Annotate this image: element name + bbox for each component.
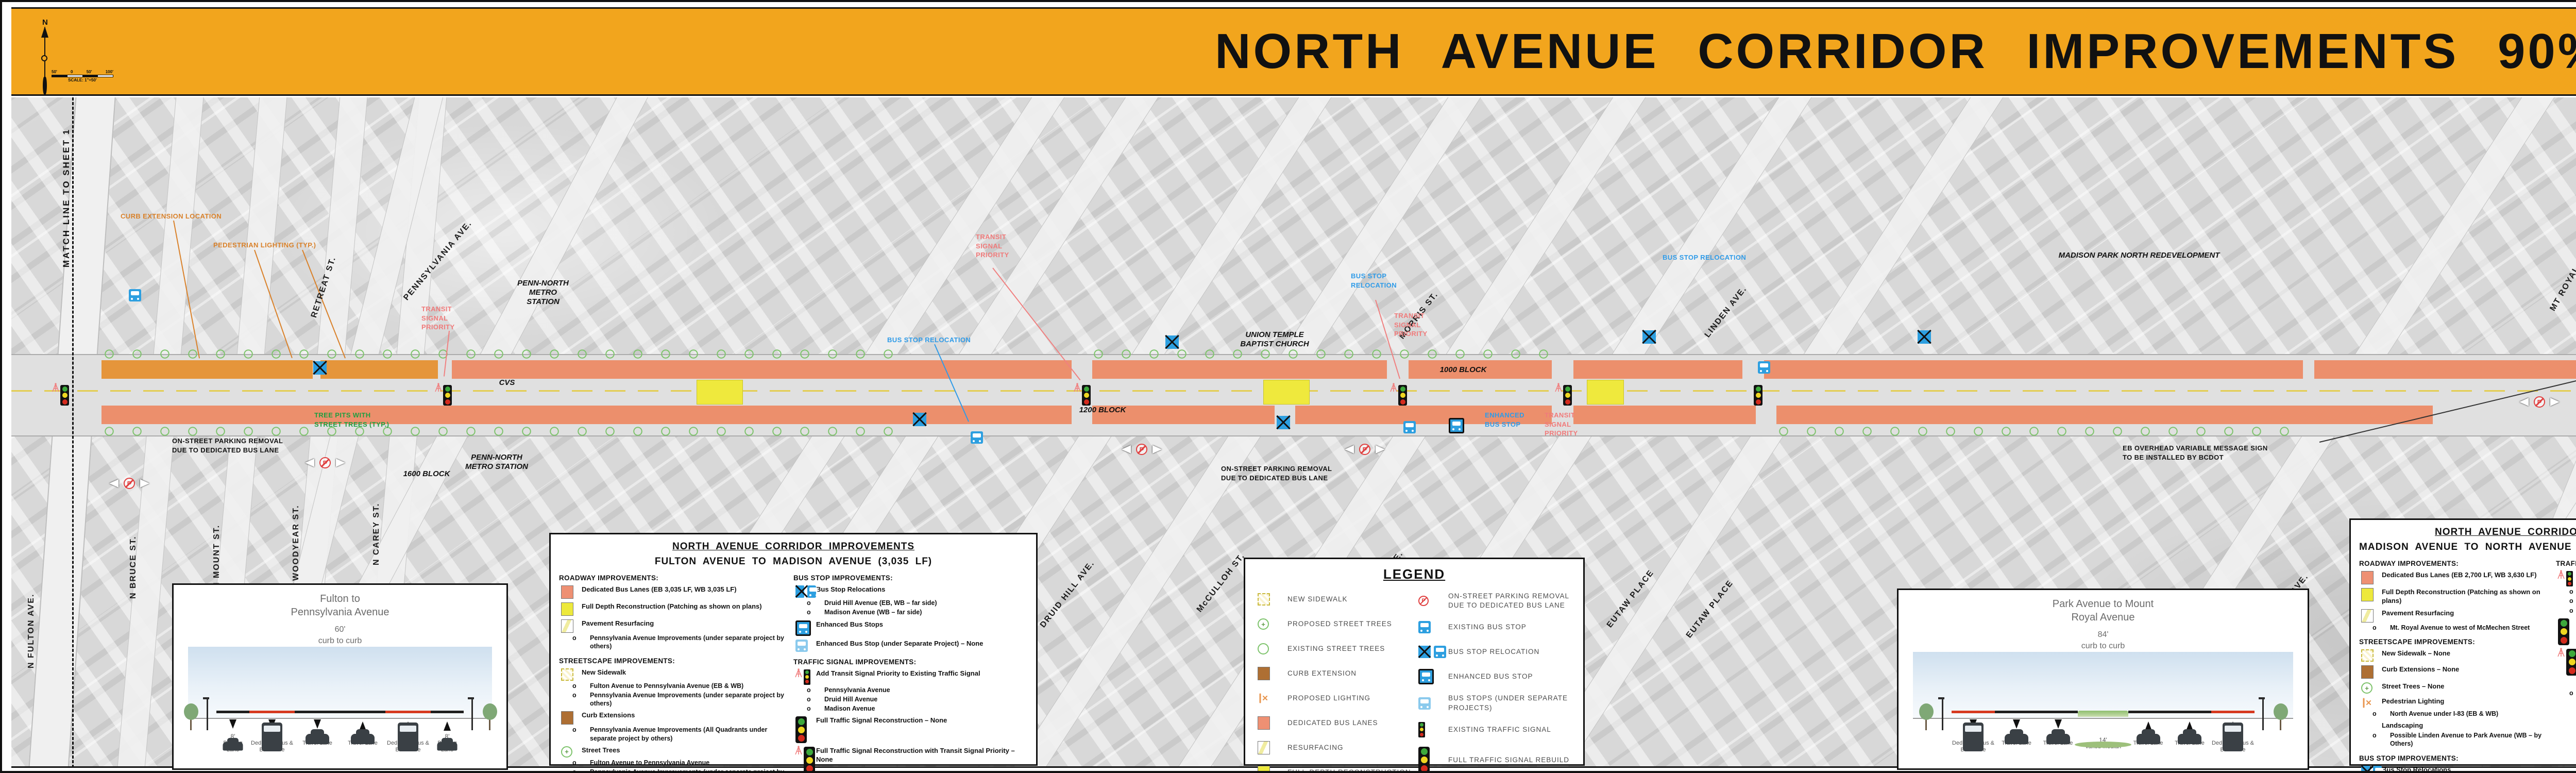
- legend-entry: Curb Extensions – None: [2361, 665, 2552, 679]
- dedicated-bus-lane-band: [2314, 360, 2576, 379]
- sig-big-tsp-icon: [795, 747, 816, 773]
- place-label: PENN-NORTHMETRO STATION: [465, 453, 528, 472]
- entry-label: Full Traffic Signal Reconstruction with …: [816, 747, 1024, 773]
- legend-entry: Full Depth Reconstruction (Patching as s…: [561, 602, 789, 616]
- improvement-group: TRAFFIC SIGNAL IMPROVEMENTS:Add Transit …: [2556, 560, 2576, 697]
- group-heading: BUS STOP IMPROVEMENTS:: [2359, 754, 2552, 762]
- group-heading: STREETSCAPE IMPROVEMENTS:: [559, 657, 789, 665]
- lane-surface: [295, 711, 340, 713]
- entry-label: Curb Extensions – None: [2382, 665, 2459, 679]
- bus-stop-removed-icon: [1277, 416, 1290, 429]
- legend-item: FULL-DEPTH RECONSTRUCTION: [1258, 765, 1414, 773]
- legend-item-label: ON-STREET PARKING REMOVAL DUE TO DEDICAT…: [1448, 592, 1575, 610]
- sub-bullet: o: [2569, 689, 2576, 697]
- legend-entry: Full Traffic Signal Reconstruction with …: [795, 747, 1024, 773]
- planted-median: [2075, 742, 2131, 748]
- sw-fd-icon: [561, 602, 582, 616]
- transit-signal-priority-icon: [1389, 383, 1398, 395]
- legend-item-label: CURB EXTENSION: [1287, 669, 1357, 678]
- bus-stop-removed-icon: [1918, 330, 1931, 344]
- lane-bus: 12'Dedicated Bus & Bike Lane: [1952, 711, 1995, 754]
- car-silhouette: [2137, 734, 2160, 744]
- legend-item-label: EXISTING TRAFFIC SIGNAL: [1448, 725, 1551, 734]
- legend-entry: Full Traffic Signal Reconstruction – Non…: [795, 716, 1024, 743]
- sub-label: Madison Avenue (WB – far side): [824, 608, 922, 616]
- entry-label: New Sidewalk – None: [2382, 649, 2450, 662]
- spacer: [2558, 679, 2576, 688]
- sw-rs-icon: [1258, 741, 1287, 754]
- lane-travel: 12'Travel Lane: [2168, 711, 2211, 747]
- lane-surface: [1952, 711, 1995, 713]
- street-trees-row: [104, 426, 908, 436]
- panel-title-line2: MADISON AVENUE TO NORTH AVENUE LIGHT RAI…: [2359, 540, 2576, 555]
- map-callout: BUS STOP RELOCATION: [887, 335, 971, 345]
- street-name-label: N FULTON AVE.: [27, 594, 36, 668]
- full-depth-reconstruction-patch: [697, 380, 743, 405]
- entry-label: Street Trees – None: [2382, 682, 2444, 694]
- sub-bullet: o: [572, 634, 590, 651]
- transit-signal-priority-icon: [1073, 383, 1081, 395]
- street-name-label: N CAREY ST.: [372, 503, 381, 565]
- entry-sub-item: oPennsylvania Avenue Improvements (under…: [572, 634, 789, 651]
- legend-item: ENHANCED BUS STOP: [1418, 669, 1575, 684]
- legend-entry: Bus Stop Relocations: [2361, 766, 2552, 773]
- legend-item: PROPOSED STREET TREES: [1258, 616, 1414, 632]
- map-callout: TRANSITSIGNALPRIORITY: [1545, 411, 1578, 438]
- sub-bullet: o: [572, 768, 590, 773]
- legend-entry: Pavement Resurfacing: [561, 619, 789, 633]
- direction-arrow: [2055, 719, 2062, 731]
- scale-ticks: 50'050'100': [52, 70, 113, 74]
- legend-entry: New Sidewalk: [561, 668, 789, 681]
- entry-sub-item: oMadison Avenue (WB – far side): [807, 608, 1024, 616]
- dedicated-bus-lane-band: [452, 360, 1072, 379]
- panel-column: TRAFFIC SIGNAL IMPROVEMENTS:Add Transit …: [2556, 560, 2576, 773]
- panel-column: ROADWAY IMPROVEMENTS:Dedicated Bus Lanes…: [2359, 560, 2556, 773]
- tree-p-icon: [561, 746, 582, 758]
- cross-section-panel-1: Fulton toPennsylvania Avenue60'curb to c…: [172, 583, 508, 770]
- scale-bar: 50'050'100' SCALE: 1"=50': [52, 70, 113, 82]
- full-depth-reconstruction-patch: [1263, 380, 1310, 405]
- tree-icon: [482, 703, 498, 730]
- bus-stop-removed-icon: [313, 361, 327, 375]
- light-icon: [1258, 693, 1287, 704]
- car-silhouette: [351, 734, 375, 744]
- map-callout: TREE PITS WITHSTREET TREES (TYP.): [314, 411, 389, 429]
- legend-item-label: FULL-DEPTH RECONSTRUCTION: [1287, 768, 1411, 773]
- dedicated-bus-lane-band: [1776, 406, 2433, 424]
- legend-column: PON-STREET PARKING REMOVAL DUE TO DEDICA…: [1414, 592, 1575, 773]
- group-heading: TRAFFIC SIGNAL IMPROVEMENTS:: [793, 658, 1024, 666]
- lane-surface: [2128, 711, 2168, 713]
- legend-item: EXISTING BUS STOP: [1418, 619, 1575, 635]
- lane-parking: 8'Parking Lane: [216, 711, 249, 754]
- street-name-label: N MOUNT ST.: [212, 525, 222, 589]
- map-callout: TRANSITSIGNALPRIORITY: [1394, 311, 1428, 339]
- legend-item-label: PROPOSED LIGHTING: [1287, 694, 1370, 703]
- improvement-group: ROADWAY IMPROVEMENTS:Dedicated Bus Lanes…: [559, 574, 789, 651]
- lane-travel: 11'Travel Lane: [295, 711, 340, 747]
- sub-bullet: o: [572, 691, 590, 708]
- enhanced-bus-stop-icon: [1449, 418, 1464, 433]
- north-arrow-icon: N: [38, 19, 54, 96]
- legend-entry: Full Traffic Signal Reconstruction with …: [2558, 649, 2576, 676]
- light-pole-icon: [203, 697, 211, 730]
- lane-travel: 12'Travel Lane: [1995, 711, 2038, 747]
- legend-entry: Full Depth Reconstruction (Patching as s…: [2361, 588, 2552, 606]
- entry-label: Full Traffic Signal Reconstruction – Non…: [816, 716, 947, 743]
- light-pole-icon: [468, 697, 476, 730]
- sidewalk-right: [2255, 711, 2291, 731]
- improvement-group: ROADWAY IMPROVEMENTS:Dedicated Bus Lanes…: [2359, 560, 2552, 632]
- lane-surface: [431, 711, 464, 713]
- tree-icon: [1919, 703, 1934, 730]
- sub-bullet: o: [807, 599, 824, 607]
- sw-bus-icon: [1258, 716, 1287, 730]
- legend-item-label: EXISTING BUS STOP: [1448, 623, 1527, 632]
- place-label: MADISON PARK NORTH REDEVELOPMENT: [2059, 251, 2220, 260]
- dedicated-bus-lane-band: [1764, 360, 2303, 379]
- legend-entry: Enhanced Bus Stops: [795, 620, 1024, 636]
- sub-bullet: o: [807, 608, 824, 616]
- improvement-group: BUS STOP IMPROVEMENTS:Bus Stop Relocatio…: [793, 574, 1024, 652]
- legend-item-label: ENHANCED BUS STOP: [1448, 672, 1533, 681]
- car-silhouette: [2005, 734, 2028, 744]
- sw-cb-icon: [2361, 665, 2382, 679]
- sub-bullet: o: [807, 686, 824, 694]
- parking-removal-marker: P: [305, 457, 345, 468]
- dedicated-bus-lane-band: [320, 360, 438, 379]
- legend-item: RESURFACING: [1258, 740, 1414, 755]
- light-pole-icon: [1938, 697, 1946, 730]
- bus-silhouette: [262, 722, 282, 751]
- place-label: 1200 BLOCK: [1079, 406, 1126, 415]
- tree-e-icon: [1258, 643, 1287, 654]
- curb-to-curb-label: 60'curb to curb: [174, 624, 506, 646]
- group-heading: STREETSCAPE IMPROVEMENTS:: [2359, 638, 2552, 646]
- improvements-panel-1: NORTH AVENUE CORRIDOR IMPROVEMENTSFULTON…: [549, 533, 1038, 766]
- legend-item: CURB EXTENSION: [1258, 666, 1414, 681]
- entry-sub-item: oPossible Linden Avenue to Park Avenue (…: [2372, 731, 2552, 748]
- group-heading: ROADWAY IMPROVEMENTS:: [2359, 560, 2552, 567]
- map-callout: EB OVERHEAD VARIABLE MESSAGE SIGNTO BE I…: [2123, 444, 2268, 462]
- legend-entry: Dedicated Bus Lanes (EB 3,035 LF, WB 3,0…: [561, 585, 789, 599]
- sw-sdw-icon: [561, 668, 582, 681]
- car-silhouette: [306, 734, 329, 744]
- scale-tick: 100': [106, 70, 113, 74]
- bus-reloc-icon: [2361, 766, 2382, 773]
- scale-caption: SCALE: 1"=50': [52, 78, 113, 82]
- entry-sub-item: oPennsylvania Avenue Improvements (under…: [572, 691, 789, 708]
- sub-bullet: o: [572, 682, 590, 690]
- direction-arrow: [2013, 719, 2020, 731]
- sub-label: Pennsylvania Avenue Improvements (All Qu…: [590, 726, 789, 743]
- legend-item: PON-STREET PARKING REMOVAL DUE TO DEDICA…: [1418, 592, 1575, 610]
- sw-sdw-icon: [1258, 593, 1287, 606]
- sig-big-icon: [1418, 747, 1448, 773]
- improvement-group: BUS STOP IMPROVEMENTS:Bus Stop Relocatio…: [2359, 754, 2552, 773]
- entry-label: Pavement Resurfacing: [582, 619, 654, 633]
- place-label: 1600 BLOCK: [403, 469, 450, 479]
- legend-item-label: EXISTING STREET TREES: [1287, 644, 1385, 653]
- street-name-label: N WOODYEAR ST.: [292, 505, 301, 591]
- legend-item: EXISTING STREET TREES: [1258, 641, 1414, 657]
- legend-item-label: FULL TRAFFIC SIGNAL REBUILD: [1448, 755, 1569, 765]
- dedicated-bus-lane-band: [101, 360, 313, 379]
- panel-columns: ROADWAY IMPROVEMENTS:Dedicated Bus Lanes…: [2359, 560, 2576, 773]
- entry-label: New Sidewalk: [582, 668, 626, 681]
- legend-columns: NEW SIDEWALKPROPOSED STREET TREESEXISTIN…: [1253, 592, 1575, 773]
- bus-stop-removed-icon: [913, 413, 926, 426]
- parking-removal-marker: P: [1345, 444, 1385, 455]
- sidewalk-right: [464, 711, 500, 731]
- sig-small-icon: [1418, 722, 1448, 737]
- legend-entry: Enhanced Bus Stop (under Separate Projec…: [795, 640, 1024, 652]
- lane-bus: 12'Dedicated Bus & Bike Lane: [2211, 711, 2255, 754]
- sub-label: Mt. Royal Avenue to west of McMechen Str…: [2390, 624, 2530, 632]
- legend-entry: Dedicated Bus Lanes (EB 2,700 LF, WB 3,6…: [2361, 571, 2552, 584]
- legend-title: LEGEND: [1253, 564, 1575, 584]
- entry-sub-item: oEutaw Place: [2569, 587, 2576, 596]
- light-icon: [2361, 697, 2382, 709]
- sub-bullet: o: [2569, 587, 2576, 596]
- design-plan-sheet: N 50'050'100' SCALE: 1"=50' NORTH AVENUE…: [0, 0, 2576, 773]
- direction-arrow: [2145, 719, 2152, 731]
- entry-label: Dedicated Bus Lanes (EB 3,035 LF, WB 3,0…: [582, 585, 737, 599]
- sw-bus-icon: [2361, 571, 2382, 584]
- parking-removal-marker: P: [2519, 396, 2560, 408]
- north-label: N: [42, 18, 48, 27]
- bus-enh-icon: [795, 620, 816, 636]
- legend-item: NEW SIDEWALK: [1258, 592, 1414, 607]
- street-trees-row: [1778, 426, 2304, 436]
- cross-section-title: Fulton toPennsylvania Avenue: [174, 592, 506, 619]
- existing-bus-stop-icon: [129, 289, 141, 301]
- lane-travel: 11'Travel Lane: [2038, 711, 2078, 747]
- lane-parking: 8'Parking Lane: [431, 711, 464, 754]
- entry-sub-item: oPennsylvania Avenue: [807, 686, 1024, 694]
- legend-item-label: BUS STOP RELOCATION: [1448, 647, 1539, 657]
- bus-reloc-icon: [795, 585, 816, 598]
- legend-item-label: DEDICATED BUS LANES: [1287, 718, 1378, 728]
- entry-sub-item: oMt. Royal Avenue/I-83 Ramps: [2569, 597, 2576, 605]
- map-callout: BUS STOP RELOCATION: [1663, 253, 1746, 262]
- legend-item: PROPOSED LIGHTING: [1258, 691, 1414, 706]
- legend-entry: Street Trees: [561, 746, 789, 758]
- improvement-group: TRAFFIC SIGNAL IMPROVEMENTS:Add Transit …: [793, 658, 1024, 773]
- entry-sub-item: oPennsylvania Avenue Improvements (All Q…: [572, 726, 789, 743]
- entry-label: Bus Stop Relocations: [2382, 766, 2451, 773]
- legend-item-label: RESURFACING: [1287, 743, 1344, 752]
- entry-label: Bus Stop Relocations: [816, 585, 885, 598]
- legend-entry: Add Transit Signal Priority to Existing …: [2558, 571, 2576, 586]
- bus-sep-icon: [1418, 697, 1448, 710]
- legend-item-label: PROPOSED STREET TREES: [1287, 619, 1392, 629]
- scale-tick: 50': [52, 70, 57, 74]
- bus-reloc-icon: [1418, 646, 1448, 658]
- bus-silhouette: [2223, 722, 2243, 751]
- traffic-signal-tsp-icon: [1082, 385, 1091, 406]
- legend-item: BUS STOP RELOCATION: [1418, 644, 1575, 660]
- entry-sub-item: oMadison Avenue: [807, 704, 1024, 713]
- car-silhouette: [2178, 734, 2201, 744]
- entry-sub-item: oDruid Hill Avenue (EB, WB – far side): [807, 599, 1024, 607]
- entry-sub-item: oPennsylvania Avenue Improvements (under…: [572, 768, 789, 773]
- place-label: CVS: [499, 378, 515, 388]
- panel-column: BUS STOP IMPROVEMENTS:Bus Stop Relocatio…: [793, 574, 1028, 773]
- sub-bullet: o: [2372, 731, 2390, 748]
- sub-label: Druid Hill Avenue: [824, 695, 877, 703]
- lane-surface: [2078, 711, 2128, 717]
- legend-item: BUS STOPS (UNDER SEPARATE PROJECTS): [1418, 694, 1575, 712]
- header-band: N 50'050'100' SCALE: 1"=50' NORTH AVENUE…: [11, 7, 2576, 96]
- tree-icon: [2273, 703, 2289, 730]
- legend-panel-1: LEGENDNEW SIDEWALKPROPOSED STREET TREESE…: [1244, 558, 1585, 766]
- sw-sdw-icon: [2361, 649, 2382, 662]
- map-callout: ON-STREET PARKING REMOVALDUE TO DEDICATE…: [172, 436, 283, 455]
- entry-sub-item: oMcMechen Street: [2569, 607, 2576, 615]
- lane-surface: [1995, 711, 2038, 713]
- dedicated-bus-lane-band: [1092, 360, 1387, 379]
- sub-bullet: o: [572, 759, 590, 767]
- transit-signal-priority-icon: [52, 383, 60, 395]
- spacer: [2361, 721, 2382, 730]
- lane-surface: [216, 711, 249, 713]
- panel-columns: ROADWAY IMPROVEMENTS:Dedicated Bus Lanes…: [559, 574, 1028, 773]
- map-callout: PEDESTRIAN LIGHTING (TYP.): [213, 241, 316, 250]
- sw-rs-icon: [561, 619, 582, 633]
- group-heading: ROADWAY IMPROVEMENTS:: [559, 574, 789, 582]
- sw-rs-icon: [2361, 609, 2382, 623]
- bus-stop-removed-icon: [1642, 330, 1656, 344]
- street-trees-row: [1093, 349, 1557, 359]
- sub-bullet: o: [2372, 624, 2390, 632]
- legend-item: FULL TRAFFIC SIGNAL REBUILD: [1418, 747, 1575, 773]
- entry-label: Dedicated Bus Lanes (EB 2,700 LF, WB 3,6…: [2382, 571, 2537, 584]
- map-callout: TRANSITSIGNALPRIORITY: [421, 305, 455, 332]
- entry-label: Enhanced Bus Stop (under Separate Projec…: [816, 640, 983, 652]
- sidewalk-left: [1916, 711, 1952, 731]
- transit-signal-priority-icon: [434, 383, 443, 395]
- entry-label: Street Trees: [582, 746, 620, 758]
- lane-surface: [2211, 711, 2255, 713]
- sw-cb-icon: [1258, 667, 1287, 680]
- curb-to-curb-label: 84'curb to curb: [1899, 629, 2308, 651]
- legend-entry: New Sidewalk – None: [2361, 649, 2552, 662]
- sw-fd-icon: [1258, 766, 1287, 773]
- parked-car-silhouette: [223, 742, 243, 751]
- entry-sub-item: oFulton Avenue to Pennsylvania Avenue: [572, 759, 789, 767]
- cross-section-panel-2: Park Avenue to MountRoyal Avenue84'curb …: [1897, 589, 2309, 770]
- entry-label: Full Depth Reconstruction (Patching as s…: [582, 602, 762, 616]
- sub-label: Druid Hill Avenue (EB, WB – far side): [824, 599, 937, 607]
- bus-silhouette: [398, 722, 418, 751]
- sub-bullet: o: [2372, 710, 2390, 718]
- map-callout: ENHANCEDBUS STOP: [1485, 411, 1524, 429]
- sub-bullet: o: [807, 695, 824, 703]
- light-pole-icon: [2259, 697, 2267, 730]
- entry-label: Add Transit Signal Priority to Existing …: [816, 669, 980, 685]
- lane-median green: 14'Varied Median: [2078, 711, 2128, 751]
- tree-icon: [183, 703, 199, 730]
- full-depth-reconstruction-patch: [1587, 380, 1624, 405]
- street-trees-row: [104, 349, 908, 359]
- pmark-icon: P: [1418, 596, 1448, 606]
- direction-arrow: [2186, 719, 2193, 731]
- panel-title: NORTH AVENUE CORRIDOR IMPROVEMENTSFULTON…: [559, 540, 1028, 569]
- sig-big-icon: [2558, 618, 2576, 645]
- lane-bus: 11'Dedicated Bus & Bike Lane: [385, 711, 431, 754]
- direction-arrow: [444, 719, 451, 731]
- existing-bus-stop-icon: [1403, 421, 1416, 433]
- entry-sub-item: oMt. Royal Avenue to west of McMechen St…: [2372, 624, 2552, 632]
- sub-label: Pennsylvania Avenue Improvements (under …: [590, 768, 789, 773]
- legend-entry: Variable Message Sign (Overhead): [2558, 679, 2576, 688]
- place-label: UNION TEMPLEBAPTIST CHURCH: [1240, 330, 1309, 349]
- improvements-panel-2: NORTH AVENUE CORRIDOR IMPROVEMENTSMADISO…: [2349, 518, 2576, 766]
- sub-label: Fulton Avenue to Pennsylvania Avenue: [590, 759, 709, 767]
- scale-tick: 0: [71, 70, 73, 74]
- sub-label: North Avenue under I-83 (EB & WB): [2390, 710, 2498, 718]
- sig-tsp-icon: [795, 669, 816, 685]
- group-heading: TRAFFIC SIGNAL IMPROVEMENTS:: [2556, 560, 2576, 567]
- entry-sub-item: oFulton Avenue to Pennsylvania Avenue (E…: [572, 682, 789, 690]
- lane-travel: 11'Travel Lane: [2128, 711, 2168, 747]
- parking-removal-marker: P: [1122, 444, 1162, 455]
- legend-entry: Pavement Resurfacing: [2361, 609, 2552, 623]
- entry-label: Enhanced Bus Stops: [816, 620, 883, 636]
- section-sky: [188, 647, 492, 719]
- sub-label: Madison Avenue: [824, 704, 875, 713]
- parking-removal-marker: P: [109, 478, 149, 489]
- traffic-signal-tsp-icon: [1398, 385, 1407, 406]
- panel-title: NORTH AVENUE CORRIDOR IMPROVEMENTSMADISO…: [2359, 525, 2576, 554]
- section-sky: [1913, 652, 2293, 719]
- dedicated-bus-lane-band: [1573, 360, 1742, 379]
- sub-label: Pennsylvania Avenue Improvements (under …: [590, 634, 789, 651]
- lane-surface: [249, 711, 295, 713]
- sidewalk-left: [180, 711, 216, 731]
- legend-column: NEW SIDEWALKPROPOSED STREET TREESEXISTIN…: [1253, 592, 1414, 773]
- legend-entry: Pedestrian Lighting: [2361, 697, 2552, 709]
- entry-label: Landscaping: [2382, 721, 2423, 730]
- lane-diagram: 8'Parking Lane11'Dedicated Bus & Bike La…: [174, 711, 506, 754]
- car-silhouette: [2046, 734, 2070, 744]
- sub-bullet: o: [2569, 597, 2576, 605]
- bus-sep-icon: [795, 640, 816, 652]
- legend-item-label: BUS STOPS (UNDER SEPARATE PROJECTS): [1448, 694, 1575, 712]
- direction-arrow: [314, 719, 321, 731]
- map-callout: TRANSITSIGNALPRIORITY: [976, 232, 1009, 260]
- sub-label: Pennsylvania Avenue: [824, 686, 890, 694]
- direction-arrow: [359, 719, 366, 731]
- direction-arrow: [229, 719, 236, 731]
- legend-entry: Bus Stop Relocations: [795, 585, 1024, 598]
- dedicated-bus-lane-band: [1573, 406, 1756, 424]
- legend-item-label: NEW SIDEWALK: [1287, 595, 1348, 604]
- lane-surface: [2168, 711, 2211, 713]
- traffic-signal-icon: [1754, 385, 1762, 406]
- cross-section-title: Park Avenue to MountRoyal Avenue: [1899, 597, 2308, 624]
- legend-item: EXISTING TRAFFIC SIGNAL: [1418, 722, 1575, 737]
- bus-enh-icon: [1418, 669, 1448, 684]
- entry-sub-item: oNorth Avenue under I-83 (EB & WB): [2372, 710, 2552, 718]
- traffic-signal-tsp-icon: [1563, 385, 1572, 406]
- panel-title-line1: NORTH AVENUE CORRIDOR IMPROVEMENTS: [2359, 525, 2576, 540]
- parked-car-silhouette: [437, 742, 457, 751]
- legend-entry: Landscaping: [2361, 721, 2552, 730]
- lane-travel: 11'Travel Lane: [340, 711, 385, 747]
